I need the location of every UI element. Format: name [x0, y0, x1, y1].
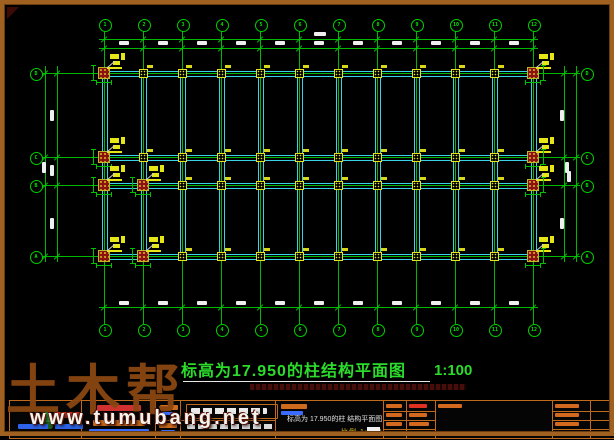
axis-bubble-bottom: 8: [372, 324, 385, 337]
mini-dim: [91, 248, 96, 249]
drawing-scale-highlight: [367, 427, 380, 434]
column-tag: [121, 137, 125, 144]
mini-dim: [93, 65, 94, 81]
mini-dim: [541, 164, 546, 165]
marker-label: [303, 65, 309, 68]
axis-bubble-top: 7: [333, 19, 346, 32]
marker-label: [498, 248, 504, 251]
marker-label: [186, 65, 192, 68]
title-block-separator: [552, 420, 614, 421]
column-red: [528, 152, 538, 162]
column-red: [138, 251, 148, 261]
axis-bubble-top: 10: [450, 19, 463, 32]
title-block-separator: [552, 411, 614, 412]
mini-dim: [130, 192, 135, 193]
marker-label: [459, 177, 465, 180]
beam-v: [258, 71, 264, 258]
dim-text-blob: [560, 218, 564, 229]
column-marker: [334, 69, 343, 78]
marker-label: [342, 149, 348, 152]
column-marker: [256, 181, 265, 190]
column-tag: [121, 236, 125, 243]
column-tag: [110, 54, 119, 59]
marker-label: [498, 149, 504, 152]
plan-title: 标高为17.950的柱结构平面图: [181, 357, 406, 381]
column-marker: [490, 153, 499, 162]
marker-label: [225, 248, 231, 251]
column-tag: [121, 53, 125, 60]
dim-text-blob: [314, 301, 324, 305]
axis-bubble-right: D: [581, 68, 594, 81]
column-marker: [334, 153, 343, 162]
beam-v: [375, 71, 381, 258]
axis-bubble-right: A: [581, 251, 594, 264]
beam-v: [414, 71, 420, 258]
mini-dim: [135, 194, 151, 195]
beam-v: [336, 71, 342, 258]
drawing-name: 标高为 17.950的柱 结构平面图: [287, 414, 385, 424]
column-tag: [146, 179, 161, 181]
marker-label: [303, 248, 309, 251]
mini-dim: [541, 80, 546, 81]
axis-bubble-right: C: [581, 152, 594, 165]
column-marker: [178, 181, 187, 190]
mini-dim: [111, 80, 112, 85]
axis-bubble-top: 5: [255, 19, 268, 32]
marker-label: [264, 149, 270, 152]
mini-dim: [91, 80, 96, 81]
beam-v: [531, 71, 537, 258]
column-marker: [373, 153, 382, 162]
axis-bubble-top: 12: [528, 19, 541, 32]
axis-bubble-bottom: 1: [99, 324, 112, 337]
title-block-separator: [383, 420, 435, 421]
field-value-blue: [161, 430, 175, 433]
column-marker: [178, 252, 187, 261]
mini-dim: [150, 263, 151, 268]
marker-label: [420, 65, 426, 68]
marker-label: [147, 65, 153, 68]
field-label: [555, 413, 579, 417]
mini-dim: [96, 265, 112, 266]
title-block-separator: [383, 411, 435, 412]
marker-label: [459, 149, 465, 152]
marker-label: [420, 248, 426, 251]
dim-text-blob: [431, 301, 441, 305]
mini-dim: [93, 177, 94, 193]
column-marker: [256, 69, 265, 78]
marker-label: [342, 65, 348, 68]
dim-text-blob: [470, 41, 480, 45]
column-marker: [139, 69, 148, 78]
column-tag: [539, 54, 548, 59]
column-tag: [146, 250, 161, 252]
column-red: [528, 180, 538, 190]
axis-bubble-bottom: 6: [294, 324, 307, 337]
mini-dim: [541, 263, 546, 264]
column-marker: [256, 252, 265, 261]
field-label: [555, 404, 579, 408]
mini-dim: [130, 248, 135, 249]
axis-bubble-bottom: 4: [216, 324, 229, 337]
beam-v: [180, 71, 186, 258]
marker-label: [264, 65, 270, 68]
column-marker: [412, 69, 421, 78]
column-marker: [295, 69, 304, 78]
field-value: [409, 404, 427, 408]
dim-line: [57, 66, 58, 262]
mini-dim: [91, 164, 96, 165]
mini-dim: [96, 194, 112, 195]
beam-v: [102, 71, 108, 258]
column-marker: [217, 69, 226, 78]
marker-label: [381, 149, 387, 152]
dim-text-blob: [119, 41, 129, 45]
dim-text-blob: [50, 110, 54, 121]
mini-dim: [525, 192, 526, 197]
dim-text-blob: [353, 41, 363, 45]
mini-dim: [541, 192, 546, 193]
dim-text-blob: [470, 301, 480, 305]
plan-title-underline: [183, 381, 430, 382]
marker-label: [186, 177, 192, 180]
dim-text-blob: [509, 41, 519, 45]
marker-label: [381, 248, 387, 251]
mini-dim: [96, 164, 97, 169]
column-marker: [178, 153, 187, 162]
beam-v: [219, 71, 225, 258]
marker-label: [186, 248, 192, 251]
field-label: [555, 422, 579, 426]
marker-label: [225, 65, 231, 68]
mini-dim: [91, 149, 96, 150]
column-tag: [149, 166, 158, 171]
column-tag: [539, 138, 548, 143]
mini-dim: [111, 192, 112, 197]
mini-dim: [111, 263, 112, 268]
mini-dim: [525, 265, 541, 266]
field-value: [409, 422, 429, 426]
mini-dim: [135, 192, 136, 197]
column-tag: [160, 236, 164, 243]
marker-label: [186, 149, 192, 152]
axis-bubble-left: C: [30, 152, 43, 165]
column-tag: [160, 165, 164, 172]
dim-text-blob: [509, 301, 519, 305]
mini-dim: [96, 263, 97, 268]
marker-label: [342, 248, 348, 251]
column-marker: [451, 252, 460, 261]
mini-dim: [132, 177, 133, 193]
column-tag: [550, 236, 554, 243]
mini-dim: [541, 248, 546, 249]
mini-dim: [135, 263, 136, 268]
mini-dim: [135, 265, 151, 266]
column-tag: [107, 250, 122, 252]
plan-title-scale: 1:100: [434, 362, 472, 379]
dim-text-blob: [567, 171, 571, 182]
axis-bubble-bottom: 11: [489, 324, 502, 337]
marker-label: [225, 149, 231, 152]
marker-label: [498, 65, 504, 68]
column-marker: [217, 153, 226, 162]
dim-text-blob: [42, 162, 46, 173]
dim-text-blob: [197, 41, 207, 45]
column-marker: [295, 153, 304, 162]
column-marker: [451, 153, 460, 162]
dim-line: [99, 39, 538, 40]
field-label: [386, 431, 402, 435]
column-marker: [451, 181, 460, 190]
marker-label: [420, 149, 426, 152]
beam-v: [453, 71, 459, 258]
mini-dim: [541, 177, 546, 178]
column-tag: [107, 179, 122, 181]
marker-label: [381, 65, 387, 68]
field-label: [386, 404, 402, 408]
dim-text-blob: [314, 41, 324, 45]
field-value: [409, 431, 429, 435]
dim-text-blob: [275, 301, 285, 305]
column-marker: [373, 69, 382, 78]
dim-text-blob: [50, 165, 54, 176]
dim-text-blob: [236, 41, 246, 45]
beam-h: [102, 155, 537, 161]
column-tag: [110, 138, 119, 143]
column-tag: [110, 166, 119, 171]
column-marker: [490, 252, 499, 261]
axis-bubble-top: 2: [138, 19, 151, 32]
column-tag: [550, 53, 554, 60]
column-red: [528, 68, 538, 78]
corner-watermark-fragment: [7, 7, 25, 23]
column-marker: [412, 181, 421, 190]
beam-h: [102, 71, 537, 77]
column-marker: [334, 252, 343, 261]
beam-h: [102, 183, 537, 189]
marker-label: [498, 177, 504, 180]
axis-bubble-bottom: 10: [450, 324, 463, 337]
column-marker: [451, 69, 460, 78]
column-red: [99, 251, 109, 261]
mini-dim: [93, 248, 94, 264]
notes-orange-text: [438, 404, 462, 408]
axis-bubble-top: 9: [411, 19, 424, 32]
mini-dim: [130, 263, 135, 264]
beam-v: [141, 71, 147, 258]
title-block-separator: [552, 429, 614, 430]
column-marker: [139, 153, 148, 162]
mini-dim: [93, 149, 94, 165]
dim-text-blob: [158, 301, 168, 305]
mini-dim: [541, 149, 546, 150]
faint-red-text-row: [250, 384, 466, 390]
column-marker: [334, 181, 343, 190]
column-marker: [490, 181, 499, 190]
dim-text-blob: [119, 301, 129, 305]
column-marker: [178, 69, 187, 78]
column-tag: [110, 237, 119, 242]
watermark-site: www.tumubang.net: [30, 407, 262, 430]
dim-line: [576, 66, 577, 262]
column-marker: [295, 181, 304, 190]
dim-text-blob: [50, 218, 54, 229]
column-red: [99, 152, 109, 162]
marker-label: [147, 149, 153, 152]
axis-bubble-top: 4: [216, 19, 229, 32]
axis-bubble-right: B: [581, 180, 594, 193]
dim-text-blob: [392, 41, 402, 45]
dim-text-blob: [275, 41, 285, 45]
column-marker: [217, 252, 226, 261]
column-marker: [373, 181, 382, 190]
mini-dim: [525, 80, 526, 85]
mini-dim: [91, 65, 96, 66]
axis-bubble-top: 3: [177, 19, 190, 32]
column-marker: [295, 252, 304, 261]
marker-label: [420, 177, 426, 180]
dim-text-blob: [353, 301, 363, 305]
mini-dim: [96, 80, 97, 85]
dim-text-blob: [392, 301, 402, 305]
marker-label: [225, 177, 231, 180]
mini-dim: [96, 192, 97, 197]
mini-dim: [541, 65, 546, 66]
axis-bubble-bottom: 7: [333, 324, 346, 337]
field-label: [386, 413, 402, 417]
dim-line: [99, 307, 538, 308]
column-red: [99, 180, 109, 190]
axis-bubble-left: B: [30, 180, 43, 193]
mini-dim: [525, 263, 526, 268]
drawing-field-orange: [281, 404, 307, 409]
marker-label: [264, 248, 270, 251]
mini-dim: [91, 177, 96, 178]
axis-bubble-left: A: [30, 251, 43, 264]
axis-bubble-bottom: 9: [411, 324, 424, 337]
column-tag: [550, 137, 554, 144]
beam-v: [492, 71, 498, 258]
column-marker: [412, 252, 421, 261]
axis-bubble-top: 6: [294, 19, 307, 32]
mini-dim: [91, 192, 96, 193]
marker-label: [264, 177, 270, 180]
column-marker: [412, 153, 421, 162]
mini-dim: [150, 192, 151, 197]
column-marker: [490, 69, 499, 78]
mini-dim: [543, 65, 544, 81]
mini-dim: [132, 248, 133, 264]
column-red: [528, 251, 538, 261]
axis-bubble-bottom: 5: [255, 324, 268, 337]
column-tag: [149, 237, 158, 242]
column-tag: [121, 165, 125, 172]
column-marker: [256, 153, 265, 162]
column-tag: [539, 237, 548, 242]
column-red: [138, 180, 148, 190]
axis-bubble-left: D: [30, 68, 43, 81]
title-block-separator: [435, 401, 436, 438]
mini-dim: [91, 263, 96, 264]
dim-line: [99, 48, 538, 49]
marker-label: [459, 248, 465, 251]
title-block-separator: [383, 429, 435, 430]
marker-label: [459, 65, 465, 68]
cad-sheet: 112233445566778899101011111212DDCCBBAA 标…: [4, 4, 610, 432]
axis-bubble-bottom: 12: [528, 324, 541, 337]
dim-text-blob: [431, 41, 441, 45]
beam-h: [102, 254, 537, 260]
column-tag: [107, 67, 122, 69]
axis-bubble-top: 1: [99, 19, 112, 32]
column-tag: [539, 166, 548, 171]
column-tag: [107, 151, 122, 153]
dim-text-blob: [314, 32, 326, 36]
column-tag: [550, 165, 554, 172]
column-red: [99, 68, 109, 78]
mini-dim: [525, 82, 541, 83]
axis-bubble-top: 8: [372, 19, 385, 32]
field-label: [386, 422, 402, 426]
mini-dim: [543, 149, 544, 165]
field-label: [555, 431, 585, 435]
dim-text-blob: [158, 41, 168, 45]
marker-label: [381, 177, 387, 180]
field-value: [409, 413, 427, 417]
dim-text-blob: [236, 301, 246, 305]
column-marker: [373, 252, 382, 261]
mini-dim: [525, 164, 526, 169]
column-marker: [217, 181, 226, 190]
dim-text-blob: [197, 301, 207, 305]
axis-bubble-bottom: 3: [177, 324, 190, 337]
axis-bubble-bottom: 2: [138, 324, 151, 337]
axis-bubble-top: 11: [489, 19, 502, 32]
mini-dim: [543, 177, 544, 193]
beam-v: [297, 71, 303, 258]
dim-text-blob: [560, 110, 564, 121]
marker-label: [342, 177, 348, 180]
mini-dim: [543, 248, 544, 264]
marker-label: [303, 177, 309, 180]
mini-dim: [130, 177, 135, 178]
mini-dim: [525, 194, 541, 195]
mini-dim: [96, 82, 112, 83]
marker-label: [303, 149, 309, 152]
